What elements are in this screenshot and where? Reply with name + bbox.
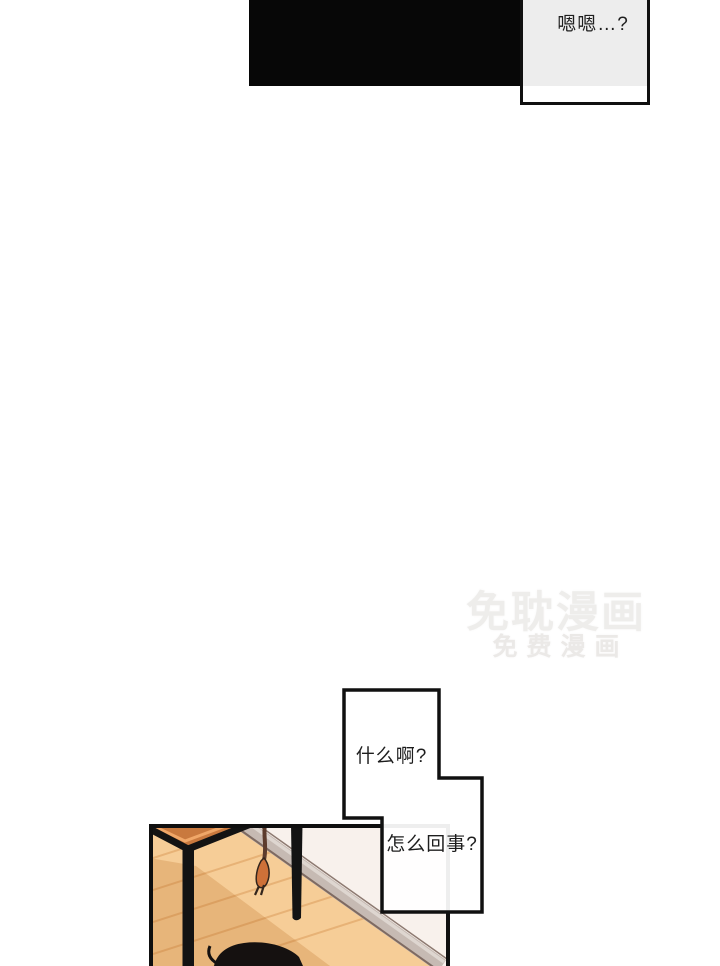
power-cord xyxy=(264,828,265,860)
table-leg-near xyxy=(183,849,195,966)
speech-bubble-whats-going-on: 怎么回事? xyxy=(382,778,482,912)
watermark-line2: 免费漫画 xyxy=(440,627,672,663)
table-leg-far xyxy=(291,828,303,920)
speech-bubble-whats-going-on-text: 怎么回事? xyxy=(386,834,478,857)
speech-bubble-top: 嗯嗯…? xyxy=(520,0,650,105)
speech-bubble-top-text: 嗯嗯…? xyxy=(557,14,629,37)
comic-page[interactable]: 嗯嗯…? 免耽漫画 免费漫画 xyxy=(0,0,720,966)
speech-bubble-what-text: 什么啊? xyxy=(356,746,428,769)
